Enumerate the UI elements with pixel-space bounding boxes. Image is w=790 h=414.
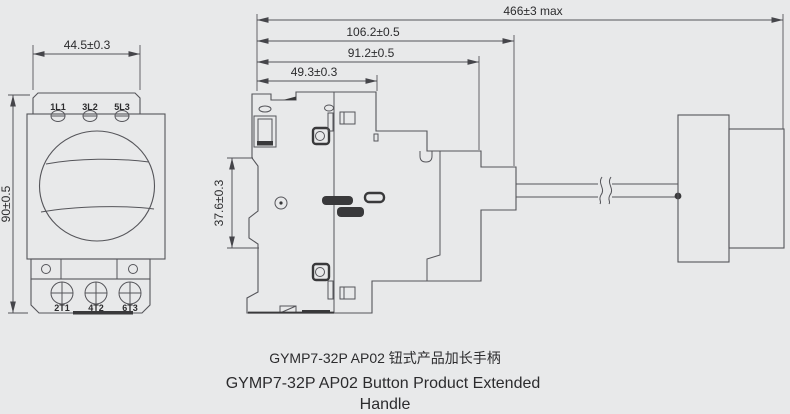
terminal-label-3L2: 3L2 bbox=[82, 102, 98, 112]
break-symbol bbox=[600, 177, 603, 204]
dim-text-din: 37.6±0.3 bbox=[212, 179, 226, 226]
terminal-label-5L3: 5L3 bbox=[114, 102, 130, 112]
caption: GYMP7-32P AP02 钮式产品加长手柄 GYMP7-32P AP02 B… bbox=[226, 350, 541, 413]
terminal-label-2T1: 2T1 bbox=[54, 303, 70, 313]
dim-text-front-depth: 49.3±0.3 bbox=[291, 65, 338, 79]
side-small-bar bbox=[374, 134, 378, 141]
side-upper-terminal-slot bbox=[254, 116, 276, 147]
side-din-latch bbox=[248, 306, 334, 314]
body-depth-dimension: 91.2±0.5 bbox=[257, 46, 479, 150]
side-upper-square bbox=[340, 112, 355, 124]
side-hole-right bbox=[325, 105, 334, 111]
side-top-tab bbox=[283, 97, 296, 101]
side-hole-left bbox=[259, 106, 271, 112]
front-top-screws bbox=[51, 111, 129, 122]
front-bottom-shadow bbox=[73, 311, 133, 315]
side-upper-clamp bbox=[313, 128, 329, 144]
dim-text-body: 91.2±0.5 bbox=[348, 46, 395, 60]
handle-bracket bbox=[678, 115, 729, 262]
din-channel-dimension: 37.6±0.3 bbox=[212, 158, 259, 248]
front-height-dimension: 90±0.5 bbox=[0, 95, 30, 313]
front-depth-dimension: 49.3±0.3 bbox=[257, 65, 377, 91]
terminal-label-1L1: 1L1 bbox=[50, 102, 66, 112]
side-lower-square bbox=[340, 287, 355, 299]
front-width-dimension: 44.5±0.3 bbox=[33, 38, 140, 90]
side-pilot-hole bbox=[275, 197, 287, 209]
dim-text-total: 466±3 max bbox=[503, 4, 562, 18]
drawing-canvas: 1L1 3L2 5L3 bbox=[0, 0, 790, 414]
caption-line1-zh: GYMP7-32P AP02 钮式产品加长手柄 bbox=[269, 350, 501, 366]
side-trip-lever bbox=[322, 193, 384, 217]
dim-text-height: 90±0.5 bbox=[0, 185, 13, 222]
front-view: 1L1 3L2 5L3 bbox=[0, 38, 165, 315]
front-bottom-screws bbox=[51, 282, 141, 304]
side-lower-clamp bbox=[313, 264, 329, 280]
front-bottom-strip bbox=[31, 259, 150, 279]
side-view: 466±3 max 106.2±0.5 91.2±0.5 49.3±0.3 37… bbox=[212, 4, 784, 314]
technical-drawing-page: 1L1 3L2 5L3 bbox=[0, 0, 790, 414]
dim-text-width: 44.5±0.3 bbox=[64, 38, 111, 52]
extension-shaft bbox=[516, 177, 681, 204]
caption-line2-en: GYMP7-32P AP02 Button Product Extended bbox=[226, 375, 541, 392]
side-internal-contour bbox=[427, 151, 440, 281]
side-lower-slot bbox=[328, 281, 333, 299]
caption-line3-en: Handle bbox=[360, 396, 411, 413]
side-u-notch bbox=[420, 151, 432, 162]
dim-text-adapter: 106.2±0.5 bbox=[346, 25, 400, 39]
front-body bbox=[27, 114, 165, 259]
front-knob bbox=[40, 131, 155, 241]
handle-knob bbox=[729, 129, 784, 248]
